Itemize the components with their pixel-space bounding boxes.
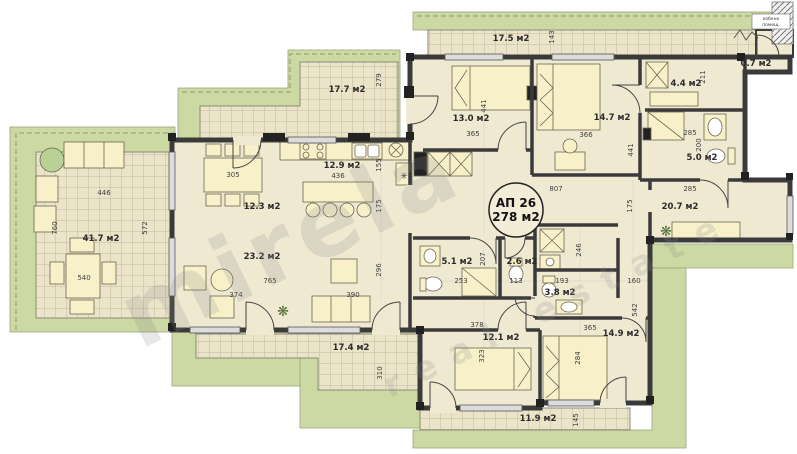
apartment-badge: АП 26 278 м2	[489, 183, 543, 237]
bedroom1-furniture	[452, 66, 541, 110]
room-label-terrace-left: 41.7 м2	[83, 234, 120, 244]
window	[552, 54, 614, 60]
floor-plan-page: 41.7 м2 17.7 м2 17.5 м2 12.9 м2 12.3 м2 …	[0, 0, 797, 454]
dim: 253	[454, 277, 467, 285]
shelf-icon	[650, 92, 698, 106]
dim: 246	[575, 243, 583, 257]
window	[169, 152, 175, 210]
dim: 542	[631, 303, 639, 316]
sofa-icon	[312, 296, 370, 322]
dim: 305	[226, 171, 239, 179]
apartment-area: 278 м2	[492, 210, 539, 224]
stair-label-line2: помещ.	[762, 23, 780, 28]
dim: 446	[97, 189, 111, 197]
chair-icon	[206, 144, 221, 156]
window	[460, 405, 522, 411]
room-label-closet: 4.4 м2	[671, 79, 702, 89]
dim: 540	[77, 274, 90, 282]
stair-label: избено помещ.	[752, 14, 790, 29]
room-label-hall: 20.7 м2	[662, 202, 699, 212]
room-label-shaft: 0.7 м2	[741, 59, 772, 69]
dim: 143	[548, 30, 556, 43]
dim: 285	[683, 129, 696, 137]
sofa-icon	[64, 142, 124, 168]
room-label-bath1: 5.1 м2	[442, 257, 473, 267]
dim: 200	[695, 138, 703, 151]
room-label-terrace-top: 17.5 м2	[493, 34, 530, 44]
dim: 207	[479, 252, 487, 265]
toilet-icon	[424, 277, 442, 291]
chair-icon	[563, 139, 577, 153]
window	[288, 137, 336, 143]
window	[787, 196, 793, 234]
dim: 807	[549, 185, 562, 193]
dim: 285	[683, 185, 696, 193]
appliance-icon	[643, 128, 651, 140]
dim: 441	[627, 143, 635, 156]
room-label-terrace-bottom2: 11.9 м2	[520, 414, 557, 424]
chair-icon	[206, 194, 221, 206]
room-label-terrace-bottom: 17.4 м2	[333, 343, 370, 353]
dim: 390	[346, 291, 359, 299]
dim: 365	[583, 324, 596, 332]
dim: 365	[466, 130, 479, 138]
chair-icon	[225, 194, 240, 206]
room-label-bedroom2: 14.7 м2	[594, 113, 631, 123]
chair-icon	[70, 300, 94, 314]
terrace-top-tiles	[428, 30, 756, 57]
room-label-bedroom1: 13.0 м2	[453, 114, 490, 124]
dim: 441	[480, 99, 488, 112]
armchair-icon	[36, 176, 58, 202]
dim: 760	[51, 221, 59, 234]
round-table-icon	[40, 148, 64, 172]
dim: 145	[572, 413, 580, 426]
desk-icon	[555, 152, 585, 170]
dim: 296	[375, 263, 383, 277]
dim: 572	[141, 221, 149, 234]
window	[288, 327, 360, 333]
dim: 279	[375, 73, 383, 86]
window	[445, 54, 503, 60]
room-label-terrace-mid: 17.7 м2	[329, 85, 366, 95]
dim: 284	[574, 351, 582, 365]
dim: 211	[699, 70, 707, 83]
room-label-bath2: 5.0 м2	[687, 153, 718, 163]
dim: 366	[579, 131, 593, 139]
dim: 175	[626, 199, 634, 212]
apartment-id: АП 26	[496, 196, 536, 210]
bed-icon	[452, 66, 530, 110]
dim: 113	[509, 277, 522, 285]
floor-plan: 41.7 м2 17.7 м2 17.5 м2 12.9 м2 12.3 м2 …	[0, 0, 797, 454]
stair-label-line1: избено	[763, 16, 780, 22]
room-label-wc1: 2.6 м2	[507, 257, 538, 267]
window	[548, 400, 594, 406]
bedroom4-furniture	[543, 336, 607, 400]
double-bed-icon	[543, 336, 607, 400]
chair-icon	[50, 262, 64, 284]
terrace-top-band	[413, 12, 793, 30]
room-label-bedroom4: 14.9 м2	[603, 329, 640, 339]
